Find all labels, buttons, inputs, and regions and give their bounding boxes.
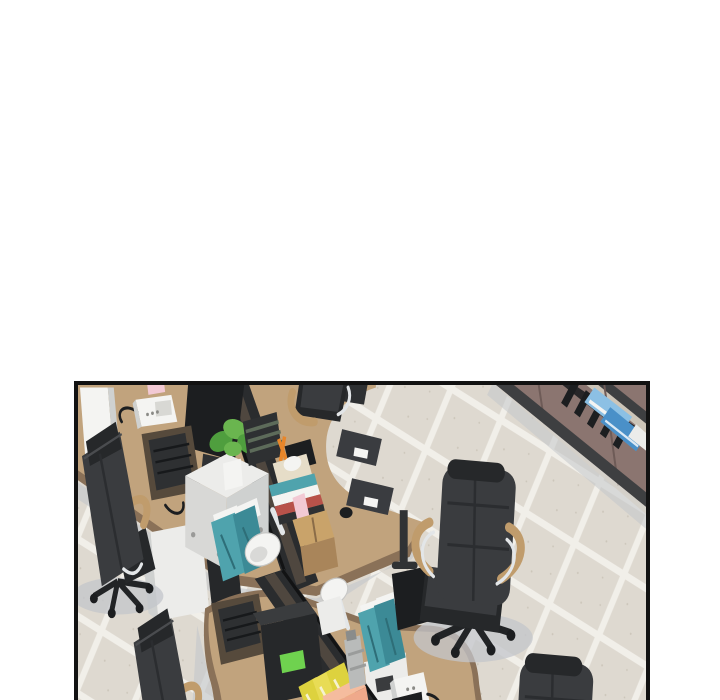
keyboard-lower-left	[211, 594, 269, 665]
mouse-upper	[340, 507, 353, 518]
document-tray-stack	[243, 412, 283, 466]
webtoon-page	[0, 0, 720, 700]
office-illustration	[78, 385, 646, 700]
comic-panel[interactable]	[74, 381, 650, 700]
office-chair-top-partial	[291, 385, 350, 422]
